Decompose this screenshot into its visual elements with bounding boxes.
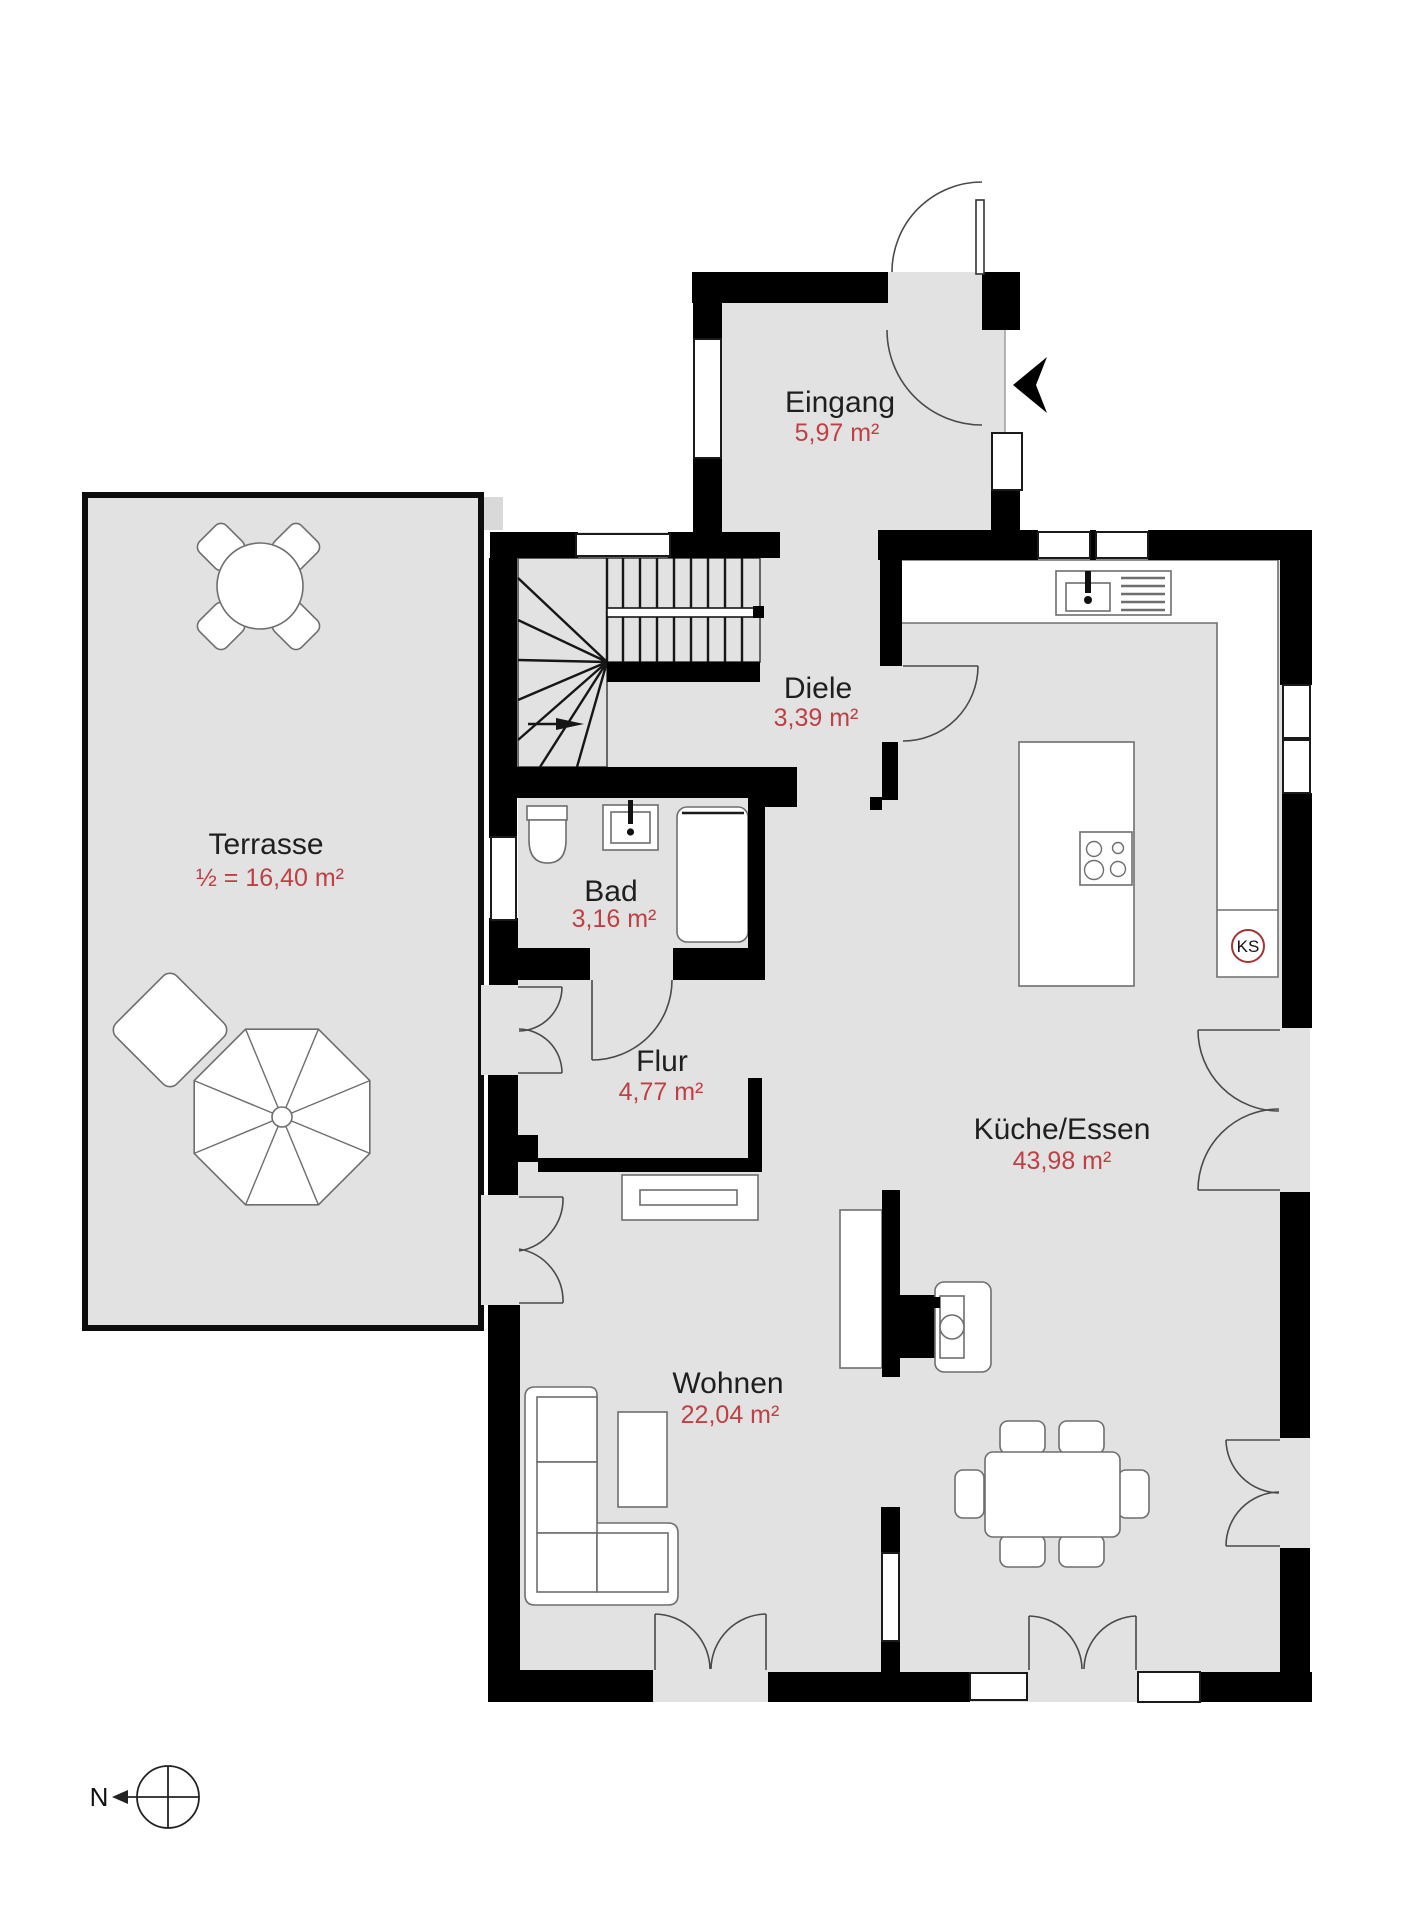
compass: N <box>90 1766 199 1828</box>
floor-terracedoor-2 <box>481 1195 518 1305</box>
terrace-round-table <box>217 543 303 629</box>
label-terrasse: Terrasse <box>208 828 323 861</box>
terrace <box>85 495 503 1328</box>
bath-sink-icon <box>603 800 658 850</box>
tv-panel <box>840 1210 882 1368</box>
floorplan-page: KS <box>0 0 1426 1920</box>
sideboard <box>622 1175 758 1220</box>
window-kitchen-north-2 <box>1096 532 1148 558</box>
label-bad: Bad <box>584 875 637 908</box>
shower-icon <box>677 807 748 942</box>
window-kitchen-east-1 <box>1283 685 1310 738</box>
window-eingang-west <box>694 339 721 458</box>
dining-table <box>985 1452 1120 1537</box>
window-bad <box>491 837 516 920</box>
parasol-icon <box>194 1029 370 1205</box>
stair-handrail <box>607 608 754 617</box>
dining-chair <box>1000 1421 1045 1454</box>
area-kueche: 43,98 m² <box>1013 1147 1112 1175</box>
toilet-icon <box>527 806 567 863</box>
north-arrow-icon <box>112 1790 128 1804</box>
dining-chair <box>1059 1535 1104 1567</box>
window-kitchen-north-1 <box>1038 532 1090 558</box>
compass-north-label: N <box>90 1782 109 1812</box>
label-eingang: Eingang <box>785 386 895 419</box>
area-bad: 3,16 m² <box>572 905 657 933</box>
window-south-2 <box>1138 1672 1200 1702</box>
dining-chair <box>1000 1535 1045 1567</box>
window-stair <box>576 534 670 556</box>
entrance-arrow-icon <box>1013 357 1047 413</box>
house-floor <box>481 272 1310 1702</box>
window-kitchen-east-2 <box>1283 740 1310 793</box>
dining-chair <box>1118 1470 1149 1518</box>
area-wohnen: 22,04 m² <box>681 1401 780 1429</box>
dining-chair <box>1059 1421 1104 1454</box>
kitchen-island <box>1019 742 1134 986</box>
floor-entry-doorway <box>888 272 982 304</box>
dining-chair <box>955 1470 984 1518</box>
coffee-table <box>618 1412 667 1507</box>
label-diele: Diele <box>784 672 852 705</box>
area-diele: 3,39 m² <box>774 704 859 732</box>
floor-terracedoor-1 <box>481 985 518 1075</box>
stair-handrail-post <box>753 606 764 618</box>
window-south-1 <box>970 1673 1027 1700</box>
label-kueche: Küche/Essen <box>974 1113 1151 1146</box>
area-terrasse: ½ = 16,40 m² <box>196 864 344 892</box>
label-flur: Flur <box>636 1045 688 1078</box>
fridge-label: KS <box>1237 937 1260 956</box>
label-wohnen: Wohnen <box>672 1367 783 1400</box>
area-eingang: 5,97 m² <box>795 419 880 447</box>
floorplan-drawing: KS <box>0 0 1426 1920</box>
terrace-shadow-step <box>481 497 503 530</box>
interior-window-partition <box>882 1553 899 1641</box>
window-eingang-east <box>992 433 1022 490</box>
area-flur: 4,77 m² <box>619 1078 704 1106</box>
kitchen-sink <box>1056 571 1171 615</box>
